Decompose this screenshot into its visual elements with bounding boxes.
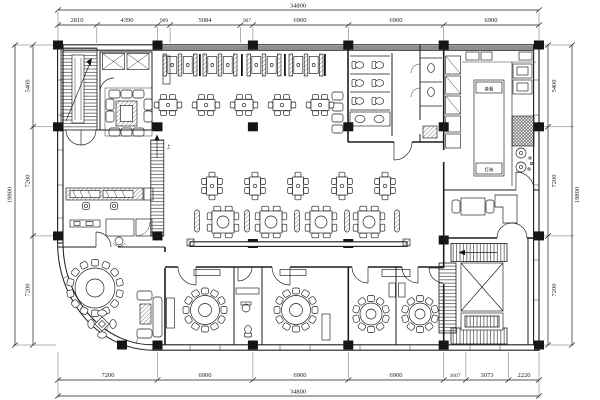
dim-left-1: 7200 — [25, 175, 32, 188]
dim-bottom-5: 3073 — [481, 372, 494, 379]
banquet-corner — [66, 260, 162, 339]
restrooms — [348, 45, 444, 160]
dim-bottom-1: 6900 — [199, 372, 212, 379]
dim-bottom-0: 7200 — [102, 372, 115, 379]
dim-top-1: 4390 — [121, 17, 134, 24]
dimension-row-bottom: 7200 6900 6900 6900 1607 3073 2220 34800 — [55, 352, 542, 399]
stair-top-left — [61, 48, 97, 130]
dim-top-3: 5084 — [199, 17, 213, 24]
dim-left-0: 5400 — [25, 80, 32, 93]
dimension-col-left: 5400 7200 7200 19800 — [7, 42, 57, 347]
floor-plan-page: 34800 2810 4390 909 5084 907 6900 6900 6… — [0, 0, 600, 400]
floor-plan-canvas: 34800 2810 4390 909 5084 907 6900 6900 6… — [0, 0, 600, 400]
private-rooms — [165, 247, 444, 345]
middle-dining — [187, 172, 410, 246]
dim-top-7: 6900 — [485, 17, 498, 24]
upper-table-row — [154, 95, 334, 116]
kitchen-island — [474, 80, 504, 176]
dim-bottom-2: 6900 — [294, 372, 307, 379]
dim-left-2: 7200 — [25, 284, 32, 297]
room2-round-table — [274, 288, 318, 332]
dimension-row-top: 34800 2810 4390 909 5084 907 6900 6900 6… — [55, 3, 542, 44]
lounge-sofa-set — [137, 291, 162, 338]
rooms-wc — [236, 267, 259, 337]
dim-bottom-3: 6900 — [390, 372, 403, 379]
dim-bottom-overall: 34800 — [290, 389, 306, 396]
kitchen-pass-label: 打荷 — [485, 167, 494, 174]
dim-right-0: 5400 — [551, 80, 558, 93]
dim-bottom-6: 2220 — [518, 372, 531, 379]
kitchen-prep-label: 备餐 — [485, 86, 494, 93]
bar-area — [58, 188, 165, 247]
dim-left-overall: 19800 — [7, 187, 14, 203]
dim-top-overall: 34800 — [290, 3, 306, 10]
booth-row — [163, 54, 343, 133]
kitchen-stove — [512, 116, 534, 146]
dim-right-2: 7200 — [551, 284, 558, 297]
room3-round-table — [352, 296, 389, 333]
stair-up-label: 上 — [166, 143, 171, 150]
round-table-14 — [66, 260, 123, 317]
room1-round-table — [183, 288, 227, 332]
dim-top-0: 2810 — [71, 17, 84, 24]
lobby-lounge — [100, 52, 152, 136]
dim-top-5: 6900 — [294, 17, 307, 24]
dim-top-4: 907 — [243, 18, 251, 24]
dim-bottom-4: 1607 — [450, 373, 461, 379]
dim-top-2: 909 — [160, 18, 168, 24]
room4-round-table — [401, 296, 438, 333]
dimension-col-right: 5400 7200 7200 19800 — [541, 42, 581, 347]
dim-right-overall: 19800 — [574, 187, 581, 203]
dim-right-1: 7200 — [551, 175, 558, 188]
stair-mid-strip: 上 — [151, 135, 171, 237]
dim-top-6: 6900 — [390, 17, 403, 24]
